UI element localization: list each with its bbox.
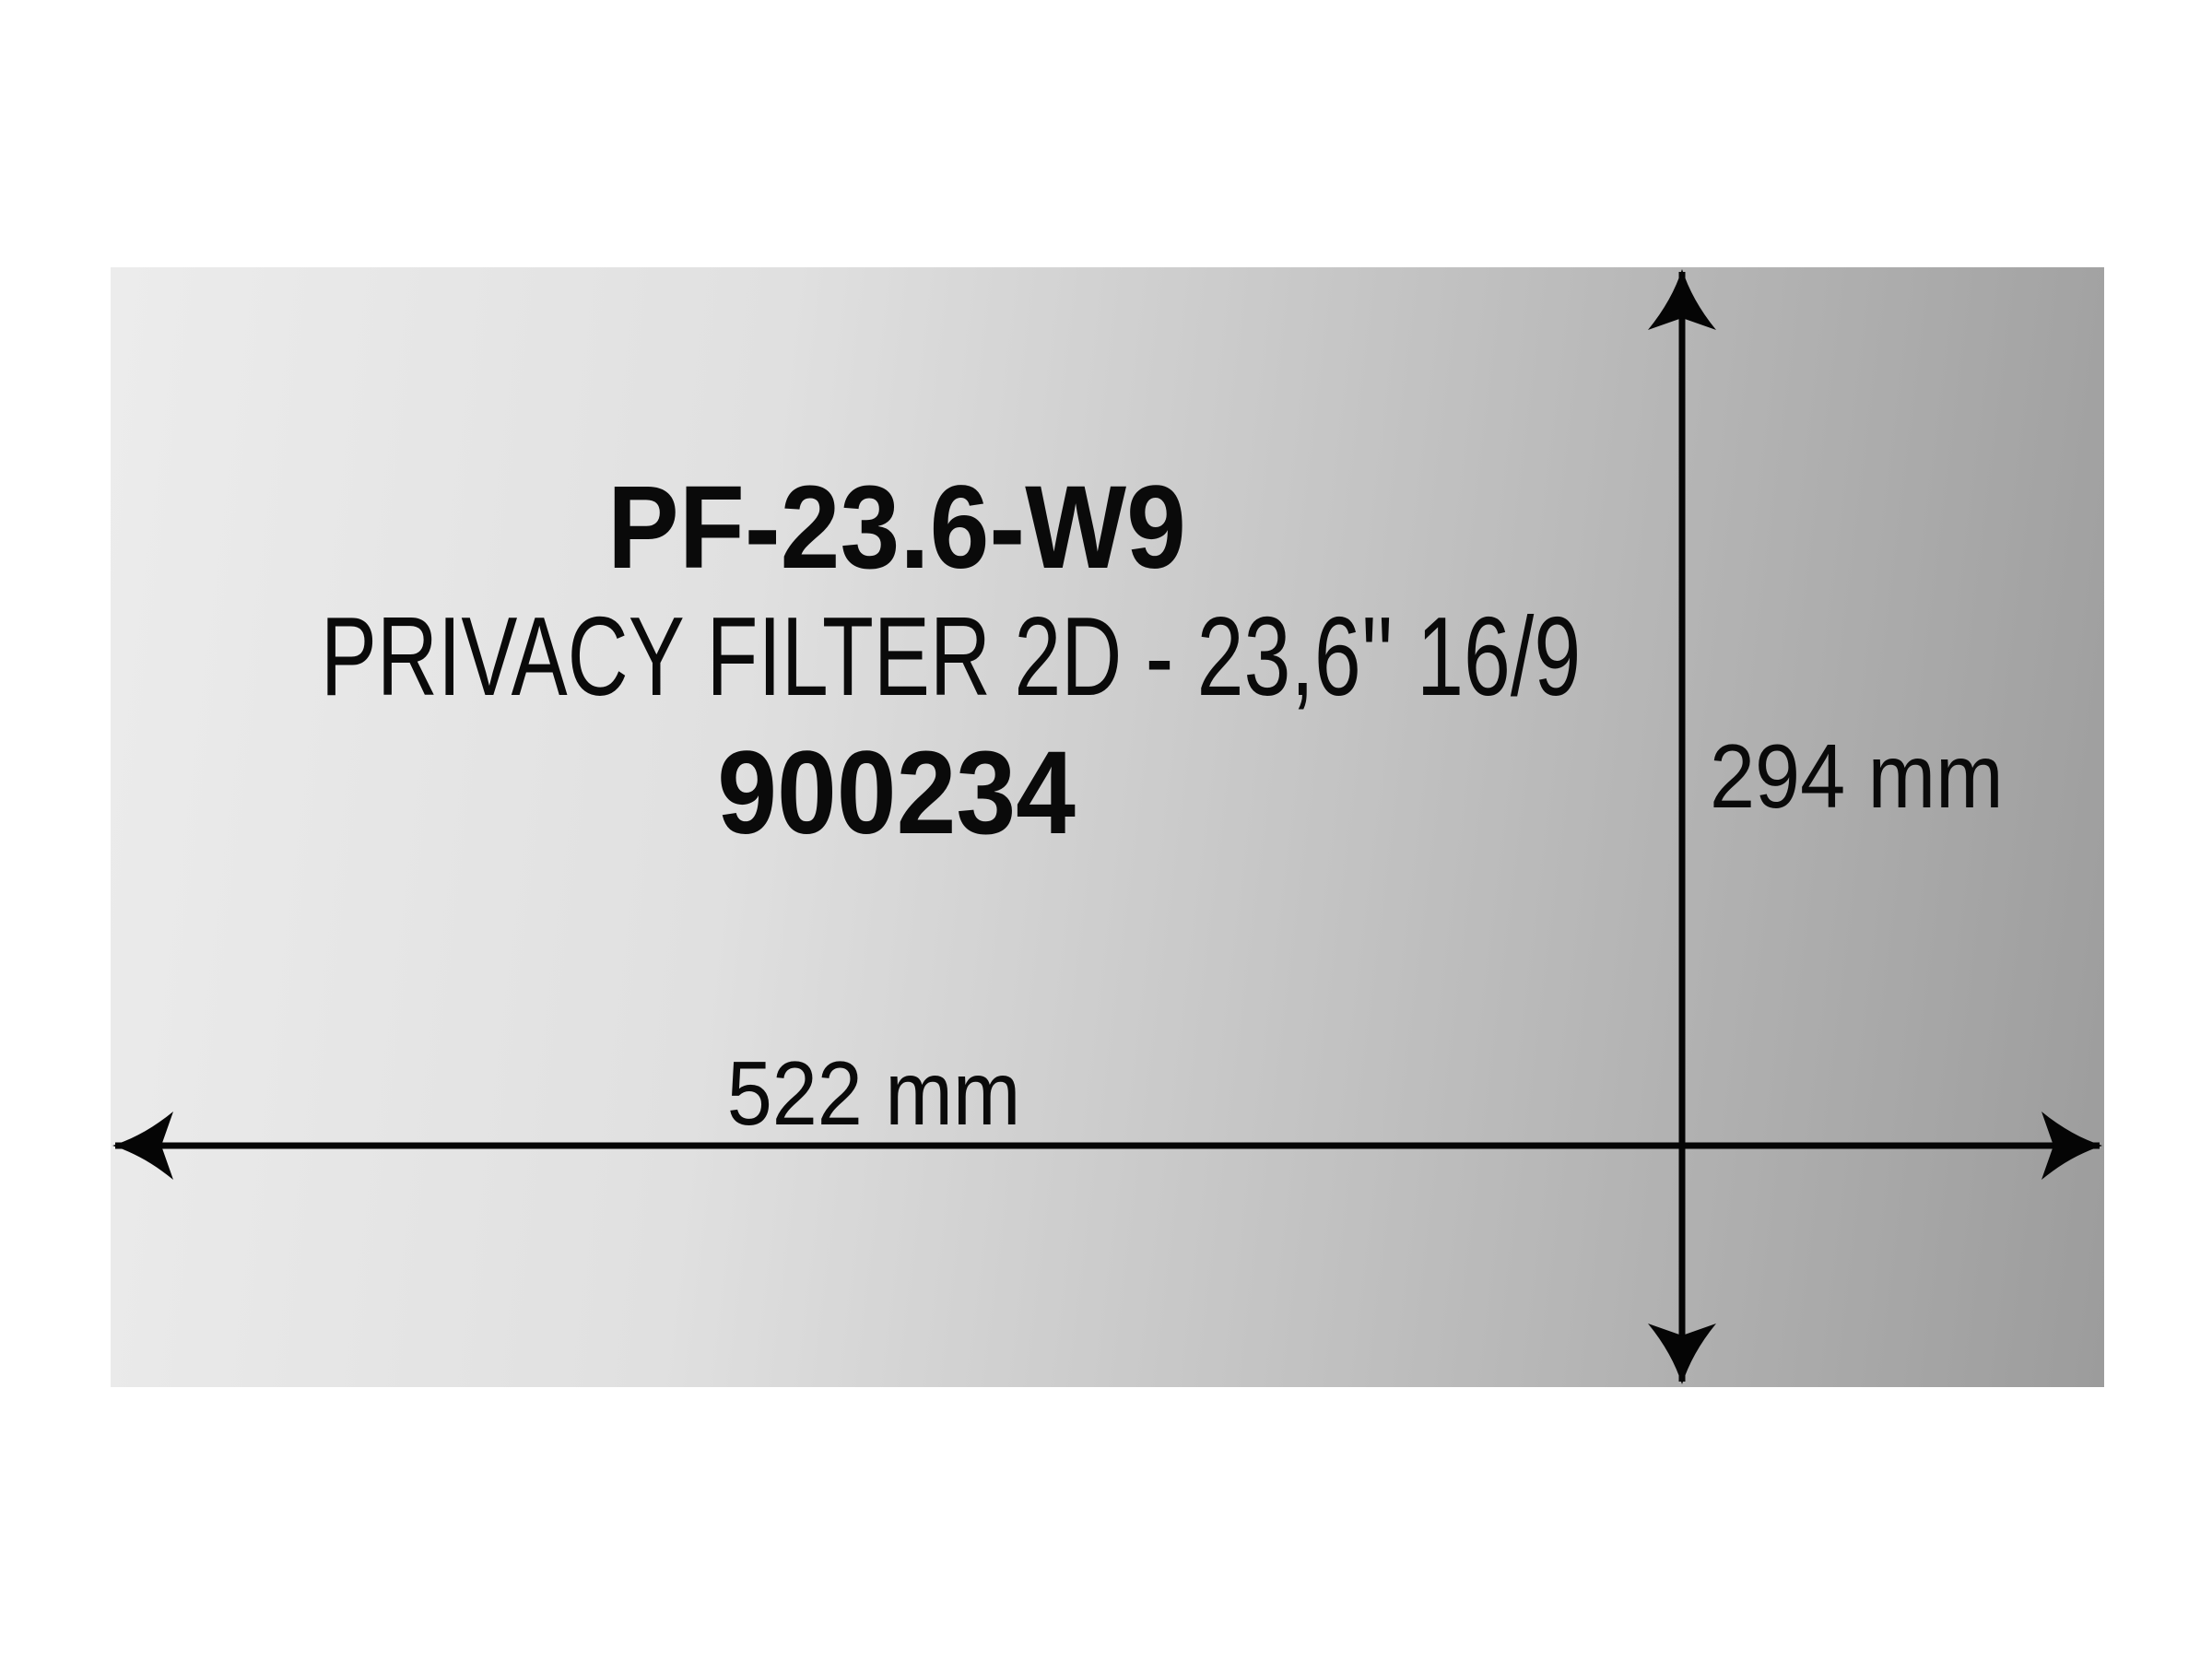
width-dimension-label: 522 mm bbox=[111, 1048, 1637, 1138]
product-model: PF-23.6-W9 bbox=[111, 469, 1682, 587]
product-article-number: 900234 bbox=[111, 735, 1682, 853]
diagram-canvas: PF-23.6-W9 PRIVACY FILTER 2D - 23,6'' 16… bbox=[0, 0, 2212, 1659]
product-description: PRIVACY FILTER 2D - 23,6'' 16/9 bbox=[111, 600, 1682, 712]
height-dimension-label: 294 mm bbox=[1710, 731, 2036, 821]
